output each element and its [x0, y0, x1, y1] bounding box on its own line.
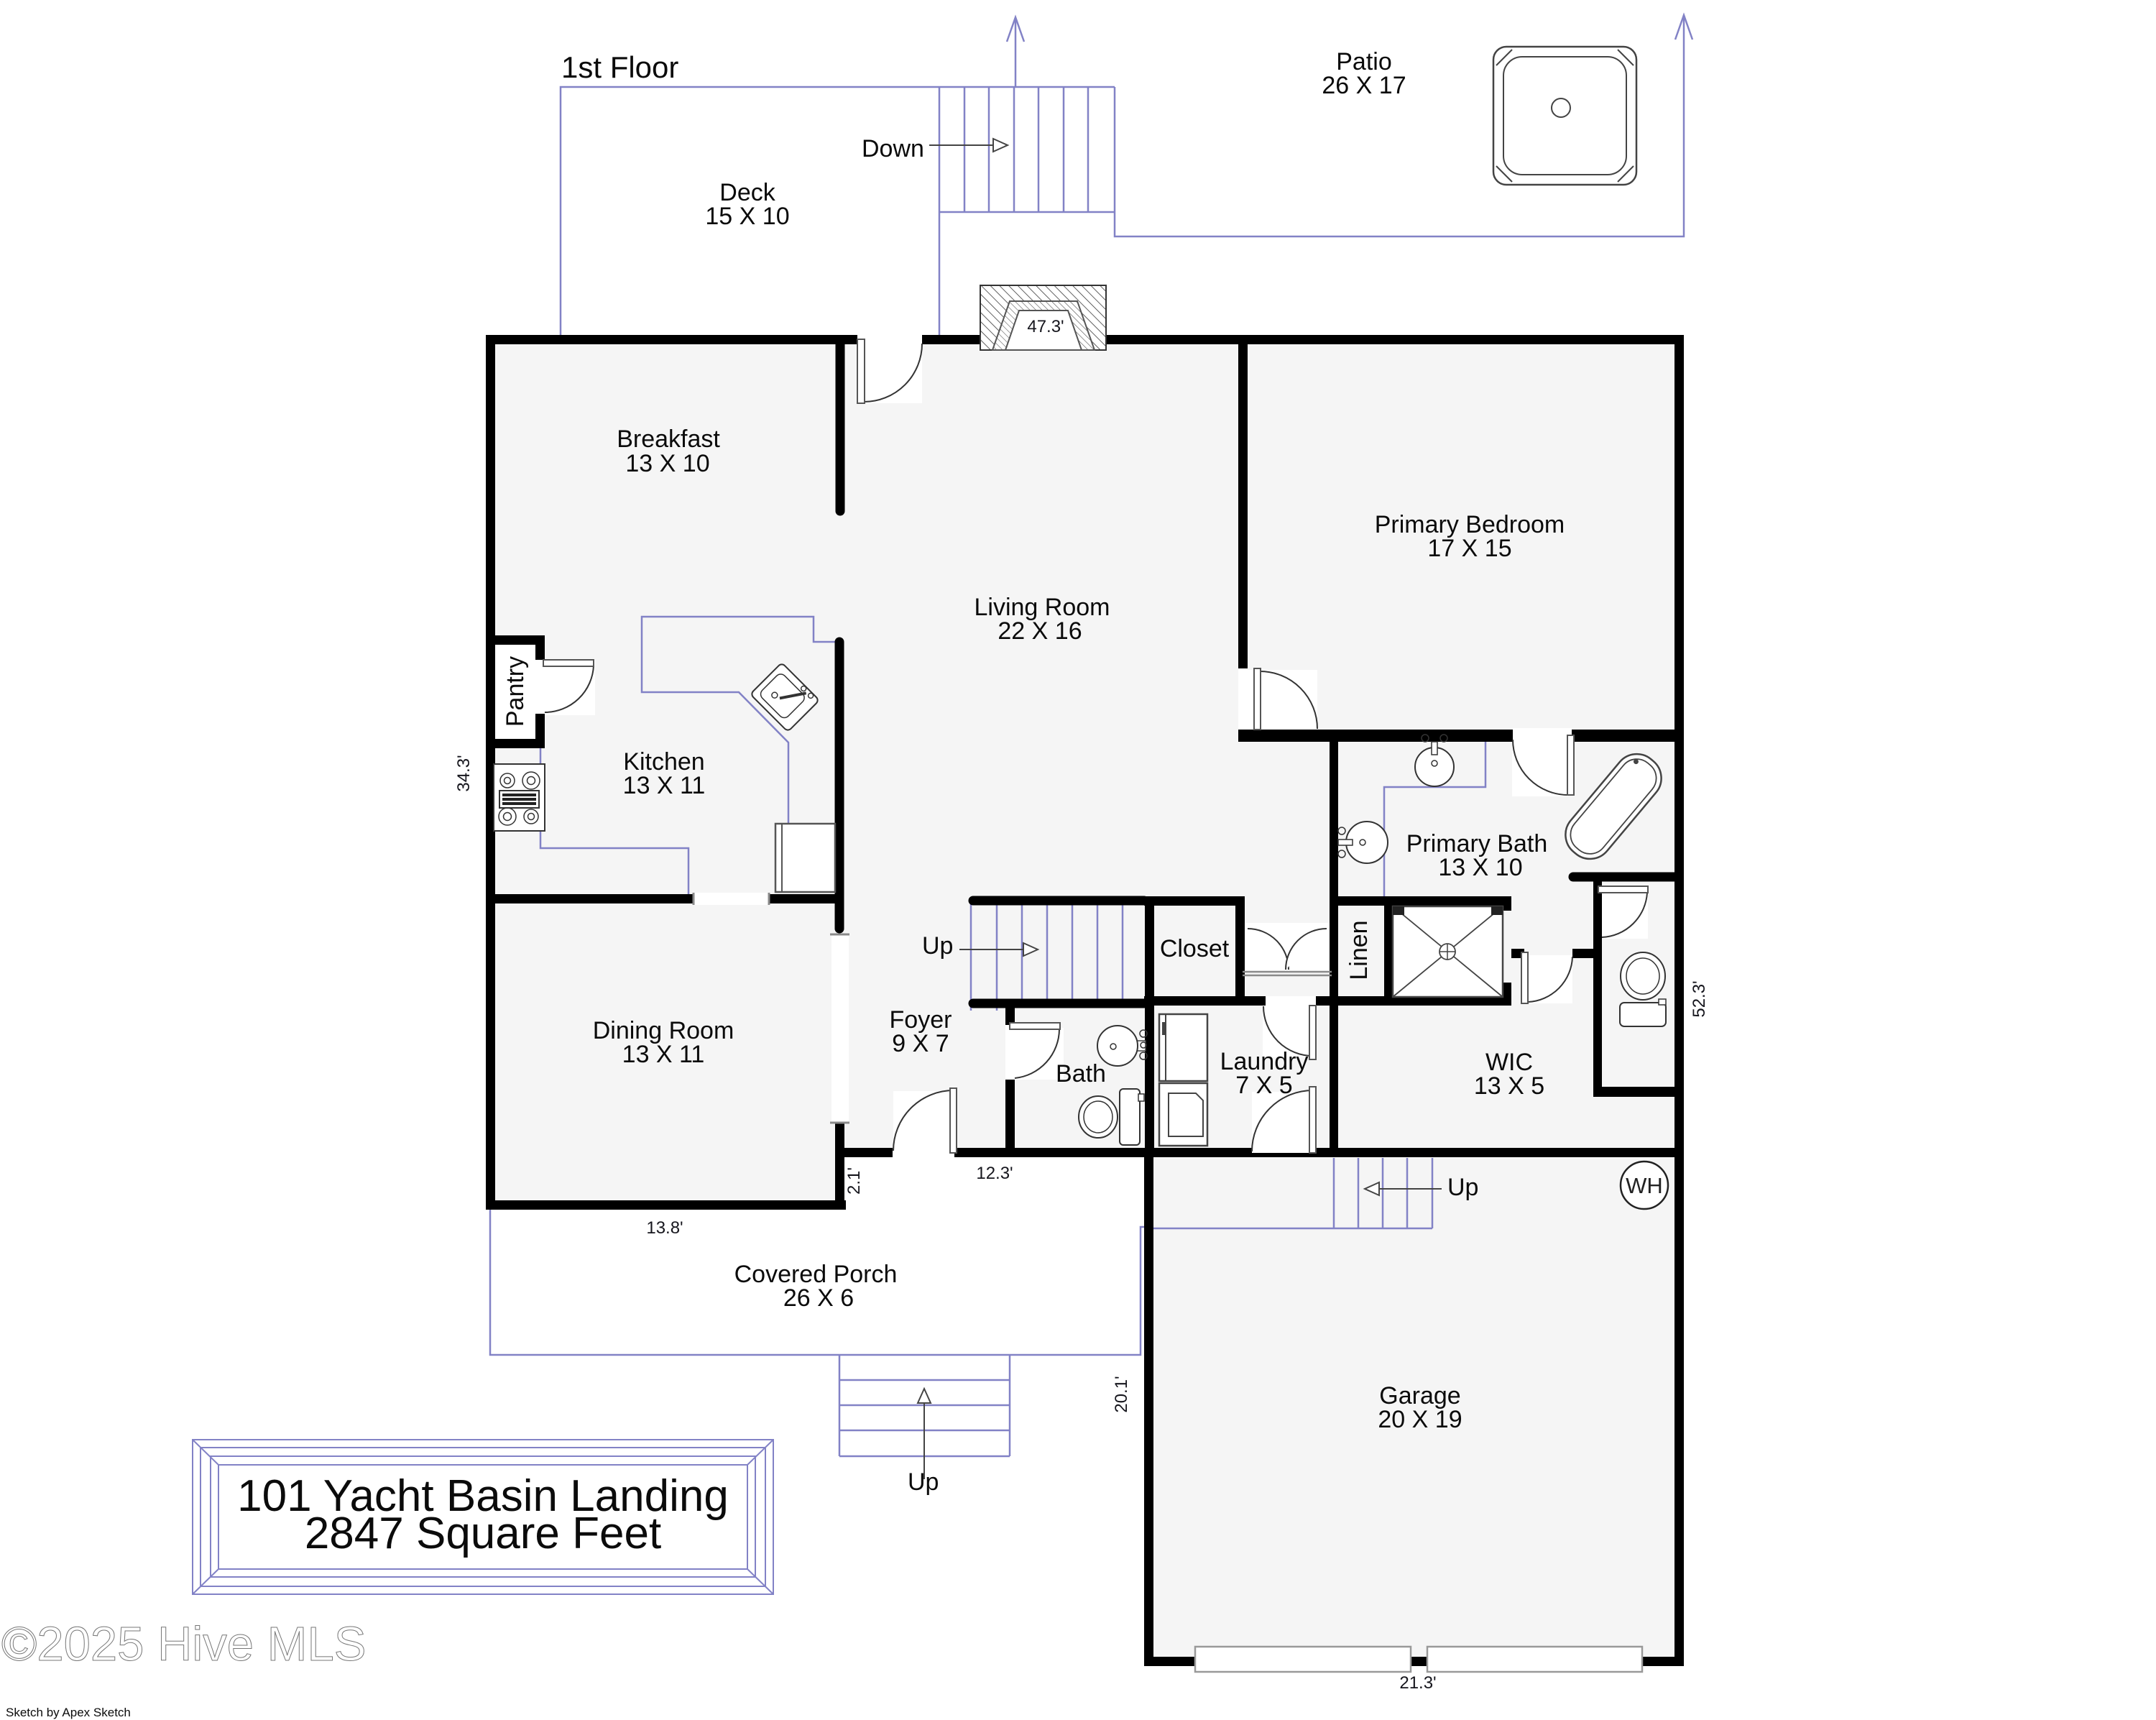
svg-text:Pantry: Pantry [502, 656, 529, 727]
svg-text:52.3': 52.3' [1690, 980, 1709, 1017]
svg-text:1st Floor: 1st Floor [561, 50, 678, 84]
svg-text:12.3': 12.3' [976, 1164, 1013, 1183]
svg-text:2.1': 2.1' [844, 1167, 864, 1195]
svg-text:7 X 5: 7 X 5 [1235, 1072, 1292, 1099]
svg-text:20.1': 20.1' [1112, 1376, 1131, 1412]
svg-text:©2025 Hive MLS: ©2025 Hive MLS [1, 1617, 366, 1671]
svg-text:Linen: Linen [1345, 920, 1373, 980]
svg-text:21.3': 21.3' [1399, 1673, 1436, 1693]
svg-text:13.8': 13.8' [646, 1218, 683, 1238]
svg-text:34.3': 34.3' [454, 755, 474, 791]
svg-text:Closet: Closet [1160, 935, 1230, 962]
svg-text:22 X 16: 22 X 16 [998, 617, 1082, 645]
svg-text:Up: Up [922, 932, 953, 960]
svg-text:2847 Square Feet: 2847 Square Feet [305, 1509, 661, 1558]
svg-text:20 X 19: 20 X 19 [1378, 1406, 1462, 1433]
svg-text:Up: Up [908, 1468, 939, 1496]
svg-text:9 X 7: 9 X 7 [892, 1030, 949, 1057]
svg-text:26 X 6: 26 X 6 [783, 1284, 854, 1312]
svg-text:Up: Up [1447, 1174, 1478, 1201]
svg-text:47.3': 47.3' [1027, 317, 1064, 336]
svg-text:13 X 11: 13 X 11 [623, 772, 706, 799]
svg-text:Bath: Bath [1056, 1060, 1106, 1087]
svg-text:WH: WH [1626, 1173, 1663, 1198]
svg-text:13 X 5: 13 X 5 [1474, 1072, 1544, 1100]
svg-text:Down: Down [862, 135, 924, 162]
svg-text:13 X 11: 13 X 11 [622, 1041, 705, 1068]
svg-text:Sketch by Apex Sketch: Sketch by Apex Sketch [6, 1706, 131, 1719]
svg-text:13 X 10: 13 X 10 [1438, 854, 1522, 881]
svg-text:17 X 15: 17 X 15 [1427, 535, 1511, 562]
svg-text:15 X 10: 15 X 10 [705, 203, 789, 230]
svg-text:13 X 10: 13 X 10 [625, 450, 709, 477]
svg-text:26 X 17: 26 X 17 [1322, 72, 1406, 99]
svg-text:Breakfast: Breakfast [617, 426, 720, 453]
